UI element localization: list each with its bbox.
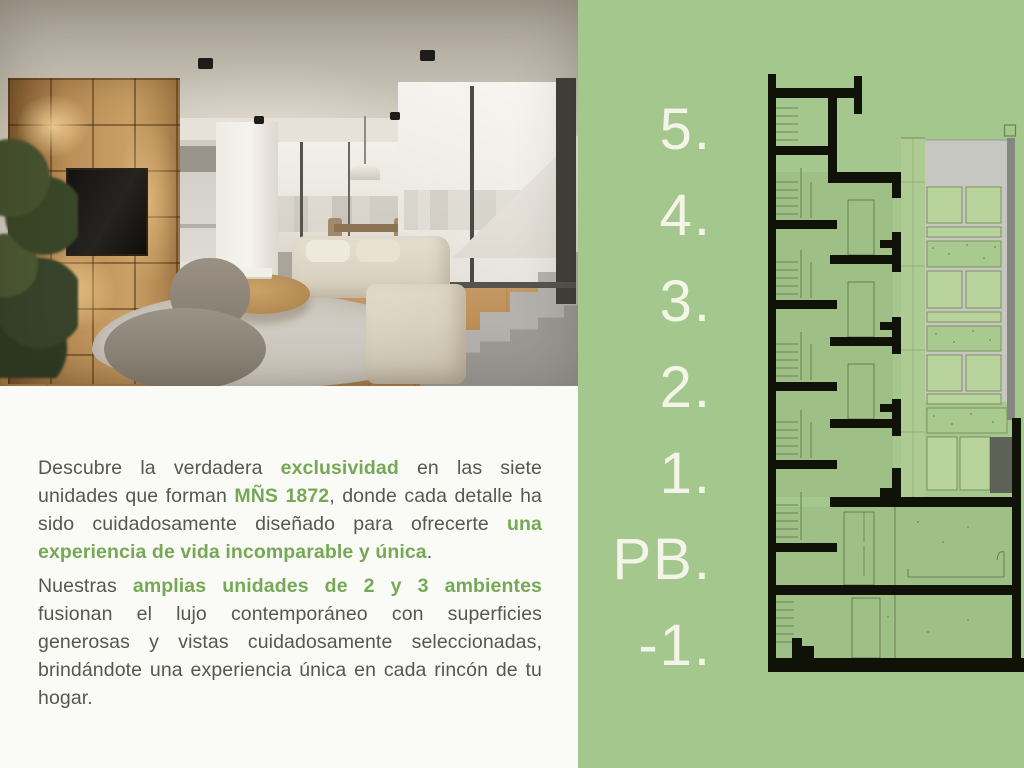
- section-panel: 5. 4. 3. 2. 1. PB. -1.: [578, 0, 1024, 768]
- paragraph-unidades: Nuestras amplias unidades de 2 y 3 ambie…: [38, 572, 542, 712]
- highlight-project-name: MÑS 1872: [234, 485, 329, 507]
- interior-photo: [0, 0, 578, 386]
- floor-label-pb: PB.: [582, 526, 712, 594]
- photo-vignette: [0, 0, 578, 386]
- floor-label-4: 4.: [582, 182, 712, 250]
- floor-label-3: 3.: [582, 268, 712, 336]
- marketing-text-panel: Descubre la verdadera exclusividad en la…: [0, 386, 578, 768]
- floor-label-5: 5.: [582, 96, 712, 164]
- brochure-page: Descubre la verdadera exclusividad en la…: [0, 0, 1024, 768]
- highlight-ambientes: amplias unidades de 2 y 3 ambientes: [133, 575, 542, 597]
- elevation-behind: [901, 125, 1016, 497]
- highlight-exclusividad: exclusividad: [281, 457, 399, 479]
- floor-label-1: 1.: [582, 440, 712, 508]
- floor-label-minus1: -1.: [582, 612, 712, 680]
- floor-label-2: 2.: [582, 354, 712, 422]
- building-section-drawing: [768, 72, 1024, 672]
- paragraph-exclusividad: Descubre la verdadera exclusividad en la…: [38, 454, 542, 566]
